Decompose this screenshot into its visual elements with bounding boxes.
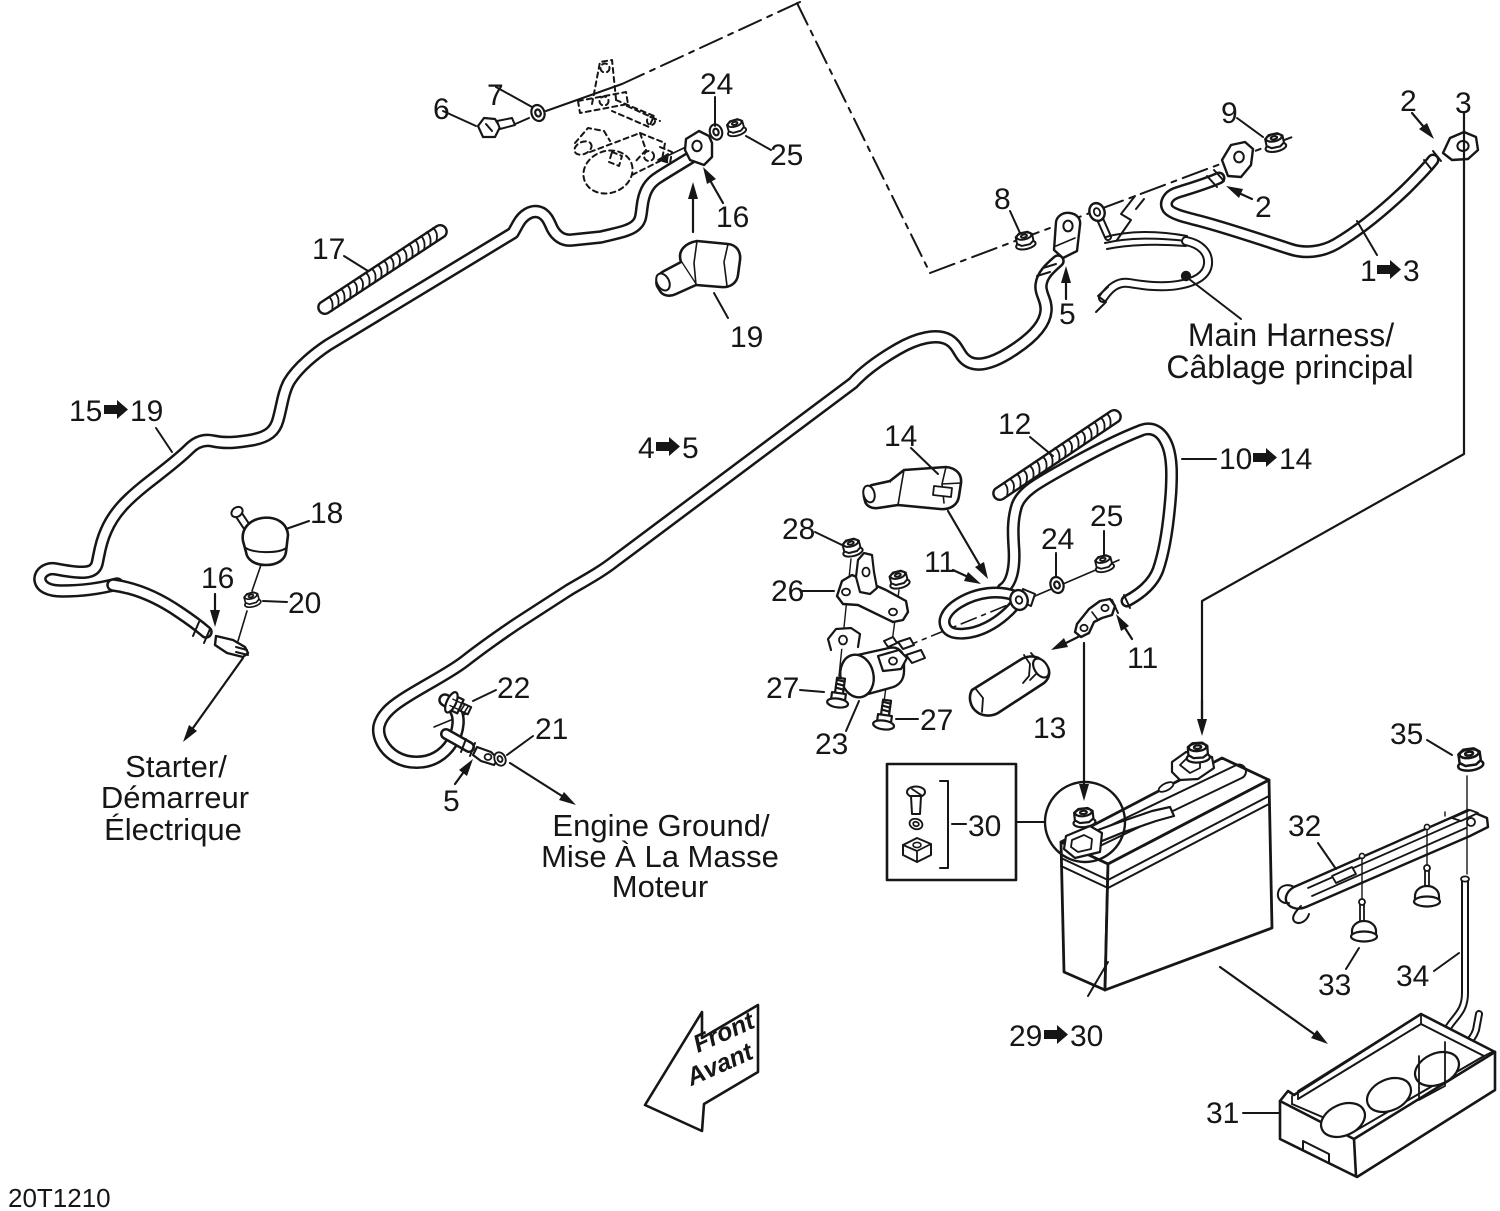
svg-text:24: 24 — [700, 68, 733, 101]
svg-text:9: 9 — [1221, 97, 1238, 130]
svg-text:29: 29 — [1009, 1020, 1042, 1053]
svg-text:20T1210: 20T1210 — [8, 1183, 111, 1211]
svg-text:2: 2 — [1255, 191, 1272, 224]
svg-text:Électrique: Électrique — [104, 812, 242, 847]
svg-text:Engine Ground/: Engine Ground/ — [552, 808, 770, 843]
svg-text:30: 30 — [968, 810, 1001, 843]
svg-text:16: 16 — [201, 562, 234, 595]
svg-text:12: 12 — [998, 408, 1031, 441]
svg-text:34: 34 — [1396, 960, 1429, 993]
svg-text:1: 1 — [1360, 255, 1377, 288]
svg-text:14: 14 — [884, 420, 917, 453]
svg-text:5: 5 — [682, 432, 699, 465]
svg-text:19: 19 — [730, 321, 763, 354]
svg-text:Moteur: Moteur — [612, 869, 708, 904]
svg-text:4: 4 — [638, 432, 655, 465]
svg-text:3: 3 — [1455, 87, 1472, 120]
svg-text:5: 5 — [1059, 298, 1076, 331]
svg-text:13: 13 — [1033, 712, 1066, 745]
svg-text:30: 30 — [1070, 1020, 1103, 1053]
svg-text:8: 8 — [994, 183, 1011, 216]
svg-text:25: 25 — [770, 139, 803, 172]
svg-text:7: 7 — [487, 79, 504, 112]
svg-text:11: 11 — [1127, 642, 1158, 675]
svg-text:Starter/: Starter/ — [125, 749, 227, 784]
svg-text:23: 23 — [815, 728, 848, 761]
svg-text:Démarreur: Démarreur — [101, 780, 249, 815]
svg-text:14: 14 — [1279, 443, 1312, 476]
svg-text:17: 17 — [312, 233, 345, 266]
svg-text:33: 33 — [1318, 969, 1351, 1002]
svg-text:5: 5 — [443, 785, 460, 818]
svg-text:18: 18 — [310, 497, 343, 530]
svg-text:3: 3 — [1403, 255, 1420, 288]
svg-text:2: 2 — [1400, 85, 1417, 118]
svg-text:28: 28 — [782, 513, 815, 546]
svg-text:16: 16 — [716, 201, 749, 234]
svg-text:25: 25 — [1090, 500, 1123, 533]
svg-text:20: 20 — [288, 587, 321, 620]
svg-text:22: 22 — [497, 672, 530, 705]
svg-text:15: 15 — [69, 395, 102, 428]
svg-text:26: 26 — [771, 575, 804, 608]
svg-text:27: 27 — [920, 704, 953, 737]
svg-text:10: 10 — [1219, 443, 1252, 476]
svg-text:6: 6 — [433, 93, 450, 126]
svg-text:Câblage principal: Câblage principal — [1166, 349, 1413, 385]
svg-text:24: 24 — [1041, 523, 1074, 556]
svg-text:32: 32 — [1288, 810, 1321, 843]
svg-text:31: 31 — [1206, 1097, 1239, 1130]
svg-text:19: 19 — [130, 395, 163, 428]
svg-text:27: 27 — [766, 672, 799, 705]
svg-text:Main Harness/: Main Harness/ — [1188, 317, 1394, 353]
svg-text:21: 21 — [535, 713, 568, 746]
svg-text:35: 35 — [1390, 718, 1423, 751]
svg-text:11: 11 — [924, 546, 955, 579]
